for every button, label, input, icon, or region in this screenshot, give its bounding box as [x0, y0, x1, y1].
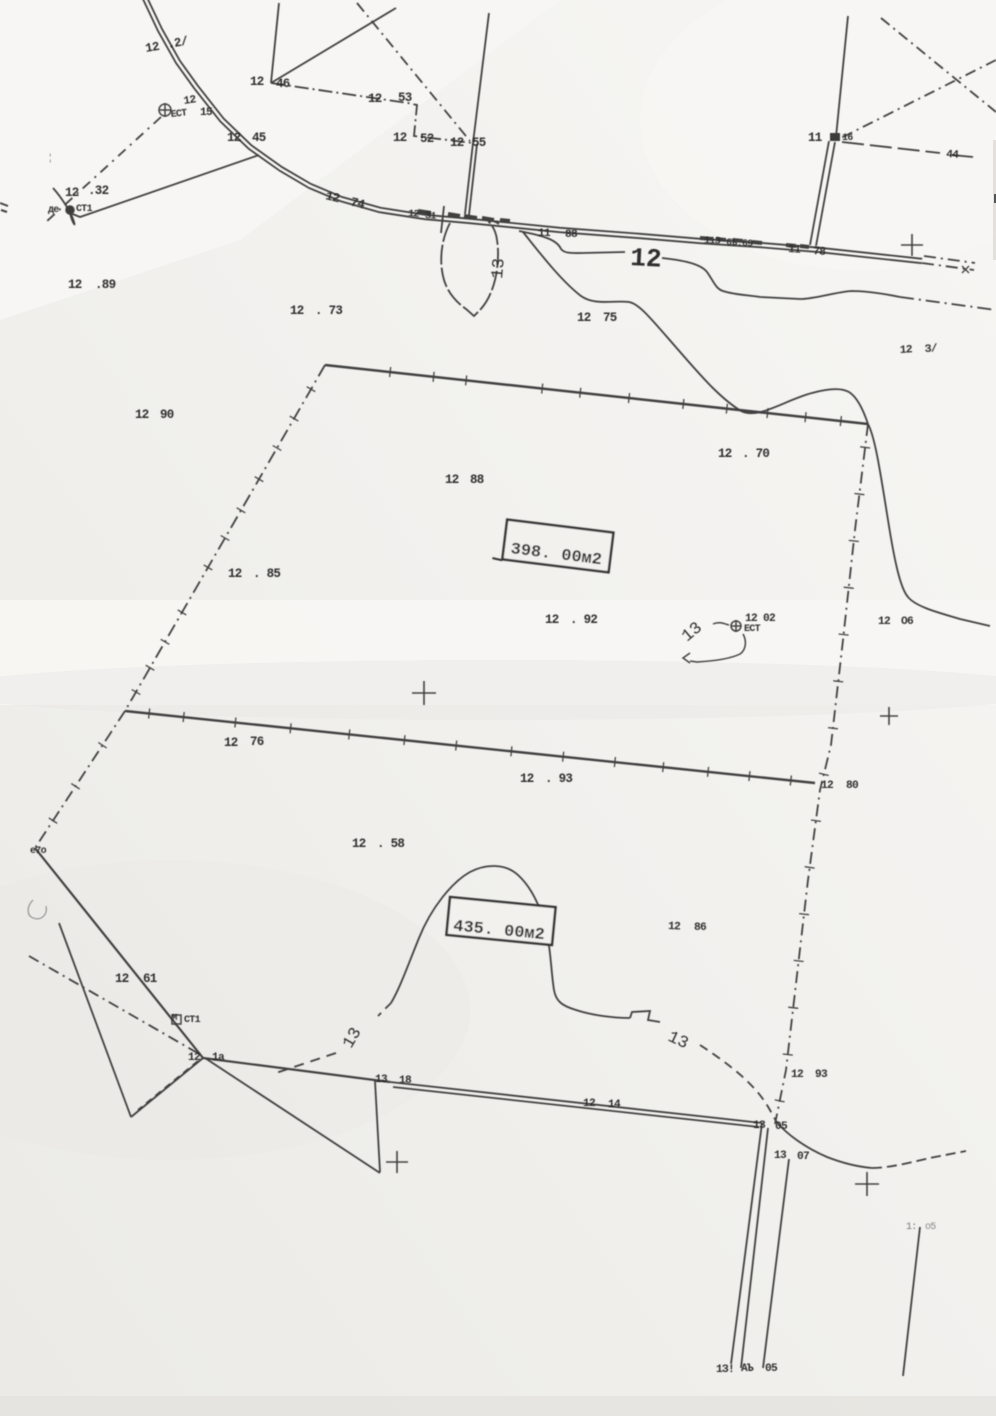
svg-text:12: 12: [821, 780, 834, 792]
svg-text:88: 88: [565, 229, 578, 241]
svg-text:. 70: . 70: [742, 447, 769, 461]
svg-text:ЕСТ: ЕСТ: [744, 624, 761, 635]
svg-text:12: 12: [583, 1098, 596, 1110]
svg-text:12: 12: [878, 616, 891, 628]
svg-text:61: 61: [143, 972, 157, 986]
svg-text:.89: .89: [95, 278, 116, 292]
svg-text:1:: 1:: [906, 1222, 917, 1233]
svg-text:78: 78: [813, 246, 827, 259]
svg-text:55: 55: [472, 136, 486, 150]
svg-text:11: 11: [788, 244, 802, 257]
svg-text:12: 12: [408, 209, 420, 221]
svg-text:АЪ: АЪ: [741, 1363, 754, 1375]
svg-text:11: 11: [538, 228, 551, 240]
svg-text:44: 44: [946, 149, 960, 162]
svg-text:12: 12: [445, 473, 459, 487]
svg-text:де: де: [48, 205, 59, 216]
svg-text:12: 12: [900, 344, 914, 357]
svg-text:12: 12: [352, 837, 366, 851]
svg-text:З1: З1: [425, 211, 437, 223]
svg-text:М: М: [172, 1013, 177, 1023]
svg-text:11Э: 11Э: [704, 236, 721, 248]
svg-text:З/: З/: [925, 343, 939, 356]
svg-text:12: 12: [393, 131, 407, 145]
svg-text:1З!: 1З!: [716, 1364, 734, 1376]
svg-text:75: 75: [603, 311, 617, 325]
svg-text:.32: .32: [88, 184, 109, 198]
svg-text:16: 16: [842, 133, 853, 144]
svg-text:12: 12: [68, 278, 82, 292]
svg-text:12: 12: [188, 1052, 201, 1064]
svg-text:. 73: . 73: [315, 304, 342, 318]
svg-text:12: 12: [144, 40, 160, 56]
svg-text:12: 12: [545, 613, 559, 627]
svg-text:о5: о5: [925, 1222, 936, 1233]
svg-text:13: 13: [489, 258, 510, 280]
svg-text:93: 93: [815, 1069, 828, 1081]
svg-text:13: 13: [774, 1150, 787, 1162]
svg-text:. 93: . 93: [545, 772, 572, 786]
svg-text:12: 12: [65, 186, 79, 200]
svg-text:6Ъ.69: 6Ъ.69: [726, 238, 754, 250]
svg-text:12: 12: [227, 131, 241, 145]
svg-text:12: 12: [577, 311, 591, 325]
svg-text:88: 88: [470, 473, 484, 487]
svg-text:45: 45: [252, 131, 266, 145]
svg-text:ЕСТ: ЕСТ: [170, 108, 188, 121]
svg-text:12: 12: [115, 972, 129, 986]
svg-text:18: 18: [399, 1075, 412, 1087]
svg-text:12: 12: [228, 567, 242, 581]
svg-text:12: 12: [520, 772, 534, 786]
svg-text:76: 76: [250, 735, 264, 749]
svg-text:12: 12: [630, 243, 663, 275]
svg-text:12: 12: [290, 304, 304, 318]
svg-text:86: 86: [694, 922, 707, 934]
svg-text:12: 12: [368, 92, 382, 106]
svg-text:13: 13: [753, 1120, 766, 1132]
svg-text:СТ1: СТ1: [76, 204, 93, 215]
svg-text:80: 80: [846, 780, 859, 792]
svg-text:12: 12: [135, 408, 149, 422]
svg-text:13: 13: [375, 1074, 388, 1086]
svg-text:12: 12: [450, 136, 464, 150]
svg-text:46: 46: [276, 77, 290, 91]
svg-text:. 85: . 85: [253, 567, 280, 581]
svg-text:12: 12: [250, 75, 264, 89]
svg-text:. 58: . 58: [377, 837, 404, 851]
svg-text:15: 15: [200, 107, 213, 119]
svg-text:90: 90: [160, 408, 174, 422]
svg-text:52: 52: [420, 132, 434, 146]
svg-text:О6: О6: [901, 616, 914, 628]
svg-text:12: 12: [791, 1069, 804, 1081]
svg-text:12: 12: [668, 921, 681, 933]
svg-text:е7о: е7о: [30, 846, 47, 857]
svg-text:СТ1: СТ1: [184, 1015, 201, 1026]
svg-text:05: 05: [775, 1121, 788, 1133]
svg-text:53: 53: [398, 91, 412, 105]
svg-text:1а: 1а: [212, 1052, 225, 1064]
svg-text:14: 14: [608, 1099, 621, 1111]
svg-text:11: 11: [808, 131, 822, 145]
svg-text:. 92: . 92: [570, 613, 597, 627]
svg-text:12: 12: [224, 736, 238, 750]
svg-text:07: 07: [797, 1151, 809, 1163]
svg-text:12: 12: [718, 447, 732, 461]
svg-text:05: 05: [765, 1363, 778, 1375]
